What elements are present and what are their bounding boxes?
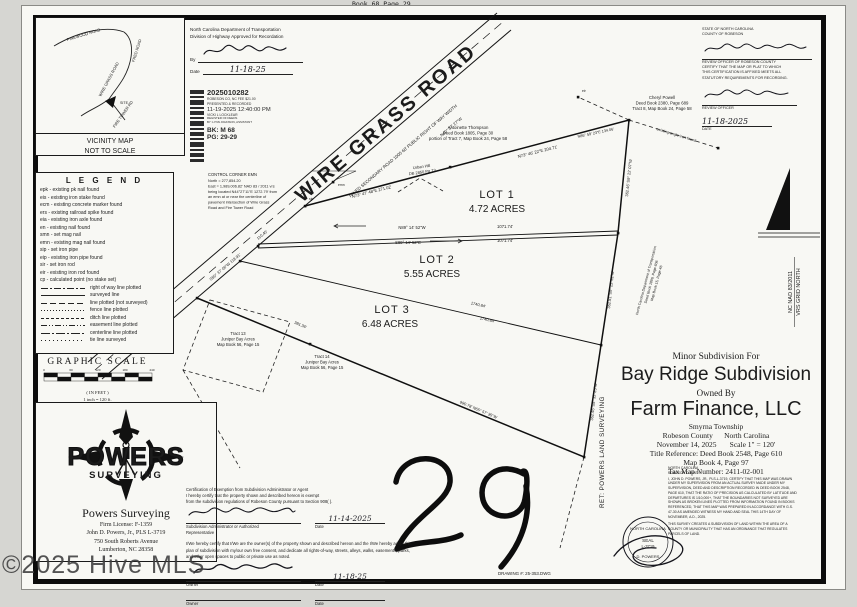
svg-text:VRS GRID NORTH: VRS GRID NORTH — [796, 268, 802, 316]
line-style-sample — [40, 286, 86, 291]
div1-dist-below: 1071.74' — [497, 238, 513, 243]
vicinity-caption-line2: NOT TO SCALE — [36, 147, 184, 157]
vicinity-site-label: SITE — [120, 101, 129, 105]
svg-text:Tract 13: Tract 13 — [230, 331, 246, 336]
handwritten-page-number — [396, 459, 528, 567]
line-style-sample — [40, 301, 86, 306]
review-body4: STATUTORY REQUIREMENTS FOR RECORDING. — [702, 76, 824, 81]
review-officer-label: REVIEW OFFICER — [702, 106, 824, 111]
legend-item: ers - existing railroad spike found — [40, 210, 169, 218]
pt-sip-label: sip — [309, 197, 313, 201]
signature-scribble-icon — [702, 43, 810, 54]
svg-text:Road and Fire Tower Road: Road and Fire Tower Road — [208, 206, 253, 210]
ncdot-signature-line — [198, 44, 303, 63]
stamp-datetime: 11-19-2025 12:40:00 PM — [207, 107, 271, 113]
subdivision-name: Bay Ridge Subdivision — [606, 364, 826, 386]
south-course-label: 990.78' N65° 57' 35"W — [459, 399, 498, 419]
ncdot-date-value: 11-18-25 — [203, 65, 293, 75]
scale-tick: 120 — [95, 368, 100, 372]
vicinity-map-sketch: PINEWOOD ROAD FRED ROAD WIRE GRASS ROAD … — [36, 18, 184, 128]
lot3-name: LOT 3 — [374, 304, 409, 316]
ncdot-by-label: By — [190, 57, 195, 64]
angle-iron-label: existing angle iron found — [656, 127, 697, 143]
vicinity-map-box: PINEWOOD ROAD FRED ROAD WIRE GRASS ROAD … — [35, 17, 185, 156]
stamp-deputy: BY: LYNN JOHNSON, ASSISTANT — [207, 121, 271, 125]
vicinity-caption-line1: VICINITY MAP — [36, 137, 184, 147]
scale-tick: 180 — [122, 368, 127, 372]
owner2-date-label: Date — [315, 601, 324, 607]
legend-line-item: tie line surveyed — [40, 337, 169, 345]
legend-item: cp - calculated point (no stake set) — [40, 277, 169, 285]
scale-units: ( IN FEET ) — [35, 390, 160, 397]
stamp-page: PG: 29-29 — [207, 134, 271, 141]
legend-item: eip - existing iron pipe found — [40, 255, 169, 263]
review-county: COUNTY OF ROBESON — [702, 32, 824, 37]
legend-item: smn - set mag nail — [40, 232, 169, 240]
signature-scribble-icon — [198, 44, 298, 57]
legend-item: sip - set iron pipe — [40, 247, 169, 255]
svg-text:Deed Book 2380, Page 689: Deed Book 2380, Page 689 — [636, 101, 689, 106]
admin-date-label: Date — [315, 524, 324, 530]
legend-box: L E G E N D epk - existing pk nail found… — [35, 172, 174, 354]
ncdot-date-label: Date — [190, 69, 200, 76]
drawing-number: DRAWING #: 25-353.DWG — [498, 571, 551, 576]
review-officer-block: STATE OF NORTH CAROLINA COUNTY OF ROBESO… — [702, 27, 824, 132]
surveyor-seal-icon: NORTH CAROLINA SEAL L-3719 D. POWERS — [612, 504, 688, 580]
ncdot-line2: Division of Highway Approved for Recorda… — [190, 34, 365, 41]
lot1-area: 4.72 ACRES — [469, 204, 525, 215]
ret-label: RET: POWERS LAND SURVEYING — [599, 396, 606, 508]
svg-text:Deed Book 1805, Page 30: Deed Book 1805, Page 30 — [443, 131, 494, 136]
east-course2-label: 362.81' S9° 22' 52"W — [606, 271, 615, 309]
lot3-area: 6.48 ACRES — [362, 319, 418, 330]
signature-scribble-icon — [702, 89, 794, 100]
vicinity-road-fred: FRED ROAD — [131, 38, 143, 62]
graphic-scale: GRAPHIC SCALE 0 60 120 180 240 ( IN FEET… — [35, 357, 160, 403]
hive-mls-watermark: ©2025 Hive MLS — [2, 551, 205, 580]
title-subheading: Minor Subdivision For — [606, 352, 826, 362]
ncdot-east-label: North Carolina Department of Transportat… — [635, 246, 668, 318]
powers-brand-top: POWERS — [67, 443, 184, 471]
svg-text:portion of Tract 7, Map Book 2: portion of Tract 7, Map Book 24, Page 58 — [429, 136, 508, 141]
legend-item: eia - existing iron axle found — [40, 217, 169, 225]
legend-line-item: right of way line plotted — [40, 285, 169, 293]
urban-hill-label: Urban Hill DB 2850 Pg 73 — [408, 162, 437, 176]
svg-text:NC NAD 83/2011: NC NAD 83/2011 — [788, 271, 794, 313]
township-line: Smyrna Township — [606, 422, 826, 431]
stamp-document-number: 2025010282 — [207, 88, 271, 97]
county-line: Robeson County North Carolina — [606, 431, 826, 440]
legend-item: sir - set iron rod — [40, 262, 169, 270]
scale-tick: 0 — [43, 368, 45, 372]
control-corner-note: CONTROL CORNER EMN North = 277,854.20 Ea… — [208, 172, 277, 210]
svg-text:East = 1,989,006.82' NAD 83 /: East = 1,989,006.82' NAD 83 / 2011 vrs — [208, 184, 275, 188]
seal-seal-text: SEAL — [642, 538, 654, 543]
svg-text:Tract 14: Tract 14 — [314, 354, 330, 359]
review-date-label: DATE — [702, 127, 824, 132]
lot1-name: LOT 1 — [479, 189, 514, 201]
owned-by-label: Owned By — [606, 388, 826, 398]
line-style-sample — [40, 323, 86, 328]
title-block: Minor Subdivision For Bay Ridge Subdivis… — [606, 352, 826, 476]
lot2-name: LOT 2 — [419, 254, 454, 266]
legend-item: eir - existing iron rod found — [40, 270, 169, 278]
line-style-sample — [40, 293, 86, 298]
review-date-value: 11-18-2025 — [702, 117, 772, 127]
pt-emn-label: emn — [338, 183, 345, 187]
legend-item: epk - existing pk nail found — [40, 187, 169, 195]
date-scale-line: November 14, 2025 Scale 1" = 120' — [606, 440, 826, 449]
vicinity-road-pinewood: PINEWOOD ROAD — [66, 27, 101, 42]
svg-text:an emn at or near the centerli: an emn at or near the centerline of — [208, 195, 267, 199]
svg-text:Juniper Bay Acres: Juniper Bay Acres — [221, 337, 255, 342]
line-style-sample — [40, 316, 86, 321]
title-reference-line: Title Reference: Deed Book 2548, Page 61… — [606, 449, 826, 458]
exemption-certification-block: Certification of Exemption from Subdivis… — [186, 487, 414, 607]
legend-line-item: centerline line plotted — [40, 330, 169, 338]
legend-item: en - existing nail found — [40, 225, 169, 233]
barcode-icon — [190, 88, 204, 164]
recording-stamp: 2025010282 ROBESON CO, NC FEE $21.00 PRE… — [190, 88, 308, 164]
scale-bar-icon: 0 60 120 180 240 — [38, 367, 158, 385]
svg-text:being located N44°27'11"E 127: being located N44°27'11"E 1272.79' from — [208, 190, 277, 194]
ncdot-line1: North Carolina Department of Transportat… — [190, 27, 365, 34]
line-style-sample — [40, 338, 86, 343]
legend-item: ecm - existing concrete marker found — [40, 202, 169, 210]
pt-eir-label: eir — [582, 89, 587, 93]
north-course2-label: N73° 46' 22"E 204.71' — [517, 144, 558, 159]
owner-date-value: 11-18-25 — [315, 572, 385, 582]
svg-text:Tract 8, Map Book 24, Page 58: Tract 8, Map Book 24, Page 58 — [632, 106, 692, 111]
review-signature-line1 — [702, 41, 812, 60]
svg-text:North Carolina Department of T: North Carolina Department of Transportat… — [635, 246, 657, 316]
vicinity-road-wiregrass: WIRE GRASS ROAD — [97, 61, 119, 97]
scale-tick: 240 — [149, 368, 154, 372]
div1-bearing-below: S89° 14' 52"E — [395, 240, 421, 245]
grid-north-label: NC NAD 83/2011 VRS GRID NORTH — [788, 257, 802, 327]
tract13-label: Tract 13 Juniper Bay Acres Map Book 56, … — [217, 331, 260, 347]
admin-signature-line — [186, 505, 301, 524]
signature-scribble-icon — [186, 506, 298, 518]
div1-bearing-above: N89° 14' 52"W — [398, 225, 425, 230]
line-style-sample — [40, 331, 86, 336]
admin-label2: Representative — [186, 530, 414, 536]
graphic-scale-title: GRAPHIC SCALE — [35, 357, 160, 367]
south-dist1-label: 381.36' — [294, 320, 308, 330]
lot2-area: 5.55 ACRES — [404, 269, 460, 280]
ncdot-approval-block: North Carolina Department of Transportat… — [190, 27, 365, 75]
review-signature-line2 — [702, 87, 797, 106]
svg-text:Cheryl Powell: Cheryl Powell — [649, 95, 675, 100]
legend-item: emn - existing mag nail found — [40, 240, 169, 248]
div2-dist-above: 1740.84' — [470, 300, 486, 308]
svg-text:Antoinette Thompson: Antoinette Thompson — [448, 125, 489, 130]
svg-text:pavement intersection of Wire: pavement intersection of Wire Grass — [208, 201, 270, 205]
line-style-sample — [40, 308, 86, 313]
seal-state-text: NORTH CAROLINA — [630, 526, 666, 531]
admin-date-value: 11-14-2025 — [315, 514, 385, 524]
scale-tick: 60 — [69, 368, 73, 372]
legend-item: eis - existing iron stake found — [40, 195, 169, 203]
svg-text:Map Book 56, Page 15: Map Book 56, Page 15 — [301, 365, 344, 370]
legend-line-item: easement line plotted — [40, 322, 169, 330]
cheryl-powell-label: Cheryl Powell Deed Book 2380, Page 689 T… — [632, 95, 692, 111]
svg-text:CONTROL CORNER EMN: CONTROL CORNER EMN — [208, 172, 257, 177]
owner-name: Farm Finance, LLC — [606, 398, 826, 421]
legend-line-item: surveyed line — [40, 292, 169, 300]
seal-name-text: D. POWERS — [637, 554, 660, 559]
legend-title: L E G E N D — [40, 176, 169, 185]
cert-county: ROBESON COUNTY — [668, 471, 798, 476]
owner-label: Owner — [186, 582, 301, 588]
legend-line-item: fence line plotted — [40, 307, 169, 315]
div2-dist-below: 1740.84' — [479, 315, 495, 323]
svg-text:Map Book 56, Page 15: Map Book 56, Page 15 — [217, 342, 260, 347]
powers-brand-bottom: SURVEYING — [89, 470, 163, 481]
legend-line-item: ditch line plotted — [40, 315, 169, 323]
stamp-book: BK: M 68 — [207, 127, 271, 134]
north-arrow-icon — [758, 168, 820, 237]
svg-text:Juniper Bay Acres: Juniper Bay Acres — [305, 360, 339, 365]
svg-text:North = 277,854.20: North = 277,854.20 — [208, 179, 241, 183]
owner-consent-paragraph: I/We hereby certify that I/We are the ow… — [186, 541, 414, 559]
road-course1-label: S50° 37' 06"W 118.91' — [208, 252, 242, 282]
owner-date-label: Date — [315, 582, 324, 588]
legend-line-item: line plotted (not surveyed) — [40, 300, 169, 308]
owner2-label: Owner — [186, 601, 301, 607]
east-course3-label: 362.46' S8° 32' 23"W — [589, 383, 598, 421]
div1-dist-above: 1071.74' — [497, 224, 513, 229]
scanned-plat-page: { "page": { "book_header": "Book 68 Page… — [0, 0, 857, 600]
